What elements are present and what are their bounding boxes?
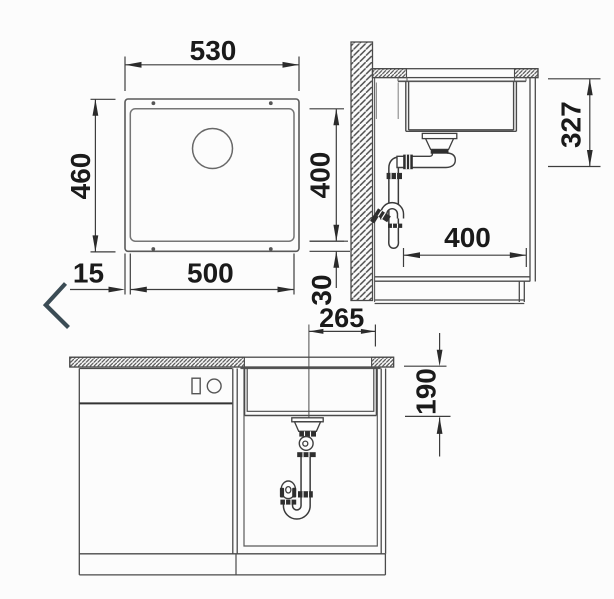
svg-text:190: 190 — [411, 368, 442, 415]
svg-text:327: 327 — [556, 101, 587, 148]
svg-text:460: 460 — [65, 153, 96, 200]
svg-text:265: 265 — [319, 303, 364, 333]
svg-text:30: 30 — [306, 274, 337, 305]
svg-text:15: 15 — [73, 257, 104, 288]
svg-text:530: 530 — [190, 35, 237, 66]
svg-text:400: 400 — [305, 152, 336, 199]
svg-text:400: 400 — [444, 222, 491, 253]
svg-text:500: 500 — [187, 257, 234, 288]
